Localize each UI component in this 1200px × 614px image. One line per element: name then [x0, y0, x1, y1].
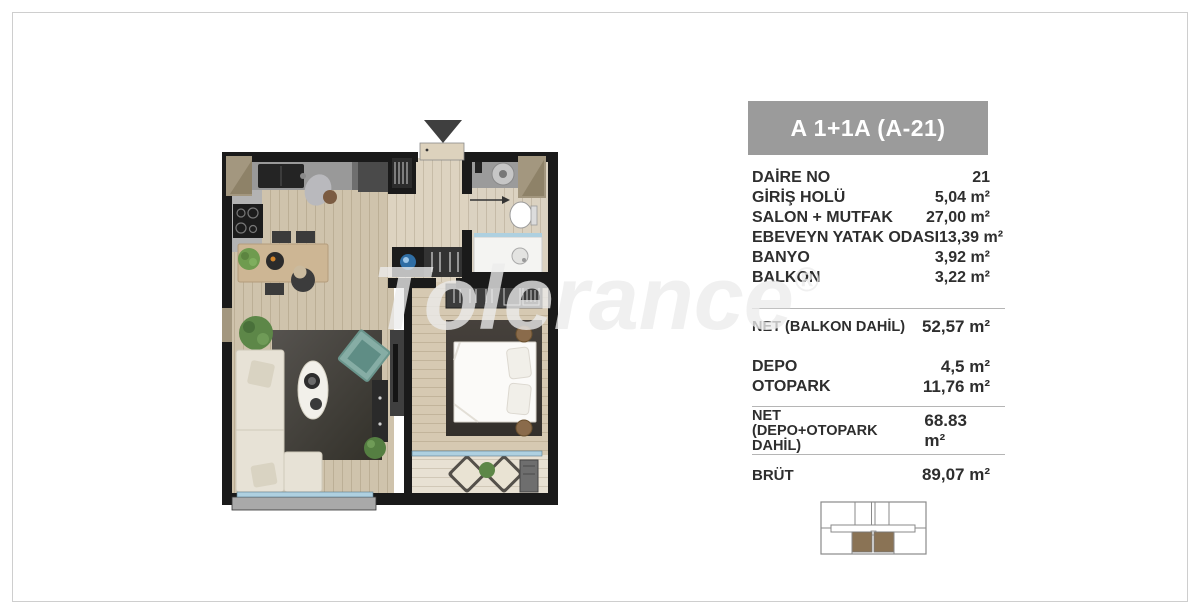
coffee-table	[298, 361, 328, 419]
table-row: BANYO 3,92 m²	[752, 248, 990, 268]
row-value: 5,04 m²	[935, 189, 990, 207]
window-sill	[232, 497, 376, 510]
bed	[454, 342, 536, 422]
unit-title-header: A 1+1A (A-21)	[748, 101, 988, 155]
otopark-row: OTOPARK 11,76 m²	[752, 377, 990, 397]
toilet	[510, 202, 532, 228]
table-row: DAİRE NO 21	[752, 168, 990, 188]
entrance-door	[420, 143, 464, 160]
row-value: 21	[972, 169, 990, 187]
floorplan-page: Tolerance® A 1+1A (A-21) DAİRE NO 21 GİR…	[0, 0, 1200, 614]
entrance	[420, 120, 464, 160]
cooktop	[233, 204, 263, 238]
room-table: DAİRE NO 21 GİRİŞ HOLÜ 5,04 m² SALON + M…	[752, 168, 990, 288]
ac-unit	[520, 460, 538, 492]
divider	[752, 454, 1005, 455]
depo-row: DEPO 4,5 m²	[752, 357, 990, 377]
entrance-arrow-icon	[424, 120, 462, 143]
row-label: BANYO	[752, 249, 810, 267]
balcony-plant	[479, 462, 495, 478]
bedroom	[446, 284, 542, 436]
highlighted-unit	[874, 532, 894, 552]
shower	[474, 237, 542, 275]
row-label: OTOPARK	[752, 378, 831, 396]
net-balkon-row: NET (BALKON DAHİL) 52,57 m²	[752, 317, 990, 337]
media-console	[372, 380, 388, 442]
row-label: NET (DEPO+OTOPARK DAHİL)	[752, 409, 924, 454]
row-label: GİRİŞ HOLÜ	[752, 189, 845, 207]
stool	[516, 420, 532, 436]
key-plan	[819, 500, 930, 558]
unit-title: A 1+1A (A-21)	[791, 115, 946, 142]
hall-console	[392, 247, 472, 277]
table-row: SALON + MUTFAK 27,00 m²	[752, 208, 990, 228]
floor-plan	[0, 0, 1200, 614]
table-row: EBEVEYN YATAK ODASI 13,39 m²	[752, 228, 990, 248]
net-total-row: NET (DEPO+OTOPARK DAHİL) 68.83 m²	[752, 415, 990, 447]
divider	[752, 308, 1005, 309]
row-value: 68.83 m²	[924, 411, 990, 451]
table-row: BALKON 3,22 m²	[752, 268, 990, 288]
row-value: 89,07 m²	[922, 465, 990, 485]
row-value: 4,5 m²	[941, 357, 990, 377]
row-label: EBEVEYN YATAK ODASI	[752, 229, 939, 247]
row-label: DAİRE NO	[752, 169, 830, 187]
highlighted-unit	[852, 532, 872, 552]
brut-row: BRÜT 89,07 m²	[752, 465, 990, 485]
row-value: 11,76 m²	[923, 377, 990, 397]
row-value: 13,39 m²	[939, 229, 1003, 247]
balcony-glass-door	[412, 451, 542, 456]
row-value: 3,92 m²	[935, 249, 990, 267]
tall-cabinet	[358, 160, 388, 192]
row-value: 3,22 m²	[935, 269, 990, 287]
plant	[239, 316, 273, 350]
row-label: BALKON	[752, 269, 820, 287]
row-value: 52,57 m²	[922, 317, 990, 337]
stool	[516, 326, 532, 342]
living-room-window	[237, 492, 373, 497]
shower-glass	[474, 233, 542, 237]
appliance-column	[392, 158, 412, 188]
floor-plant	[364, 437, 386, 459]
divider	[752, 406, 1005, 407]
tv	[393, 344, 398, 402]
row-label: SALON + MUTFAK	[752, 209, 893, 227]
row-label: NET (BALKON DAHİL)	[752, 319, 905, 335]
table-row: GİRİŞ HOLÜ 5,04 m²	[752, 188, 990, 208]
row-label: BRÜT	[752, 467, 794, 484]
row-label: DEPO	[752, 358, 797, 376]
row-value: 27,00 m²	[926, 209, 990, 227]
